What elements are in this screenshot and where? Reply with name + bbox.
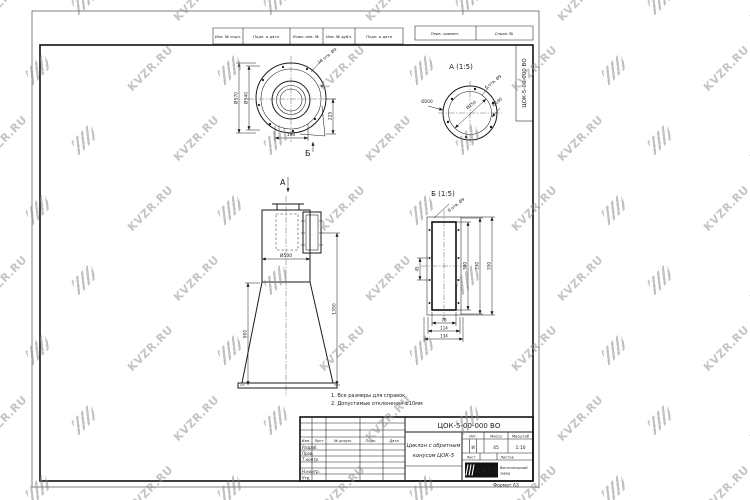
margin-cell-label: Подп. и дата xyxy=(253,34,280,39)
margin-cell-label: Подп. и дата xyxy=(366,34,393,39)
vertical-designation-text: ЦОК-5-00-000 ВО xyxy=(522,58,528,108)
dim-78: 78 xyxy=(441,318,447,323)
col-podp: Подп. xyxy=(366,439,377,443)
row-prov: Пров. xyxy=(302,451,314,456)
mass-header: Масса xyxy=(490,435,501,439)
note-line-2: 2. Допустимые отклонения ±10мм xyxy=(331,401,423,407)
part-title-line1: Циклон с обратным xyxy=(407,443,461,449)
first-application-cell: Перв. примен. xyxy=(431,31,460,36)
col-list: Лист xyxy=(313,439,324,443)
company-line2: завод xyxy=(500,472,511,476)
margin-cell-label: Взам. инв. № xyxy=(293,34,319,39)
dim-45: 45 xyxy=(415,266,420,272)
stamp-designation: ЦОК-5-00-000 ВО xyxy=(438,422,501,430)
margin-cells: Инв. № подл. Подп. и дата Взам. инв. № И… xyxy=(213,28,403,44)
scale-header: Масштаб xyxy=(512,435,530,439)
kvzr-logo-text: KVZR xyxy=(475,467,498,476)
margin-cell-label: Инв. № подл. xyxy=(215,34,241,39)
detail-a-view: А (1:5) Ø150 Ø200 Ø180 6 отв. Ø9 xyxy=(421,63,503,145)
holes-callout-18: 18 отв. Ø9 xyxy=(317,47,338,65)
drawing-page: Инв. № подл. Подп. и дата Взам. инв. № И… xyxy=(0,0,750,500)
dim-900: 900 xyxy=(243,330,249,339)
reference-number-cell: Справ. № xyxy=(495,31,514,36)
top-view: Ø570 Ø540 225 190 18 отв. Ø9 Б xyxy=(233,47,338,158)
dim-114: 114 xyxy=(440,326,448,331)
col-izm: Изм. xyxy=(302,439,310,443)
scale-value: 1:10 xyxy=(515,445,525,451)
detail-a-title: А (1:5) xyxy=(449,63,473,71)
dim-300: 300 xyxy=(463,262,468,270)
sheets-header: Листов xyxy=(499,456,513,460)
top-right-cells: Перв. примен. Справ. № xyxy=(415,26,533,40)
lit-header: Лит. xyxy=(468,435,477,439)
row-tkontr: Т.контр. xyxy=(302,457,319,462)
kvzr-logo: KVZR xyxy=(465,463,498,478)
view-ref-b: Б xyxy=(305,149,311,158)
drawing-sheet-svg: Инв. № подл. Подп. и дата Взам. инв. № И… xyxy=(0,0,750,500)
dim-dia-200: Ø200 xyxy=(421,99,433,104)
row-utv: Утв. xyxy=(302,476,310,481)
dim-dia-outer: Ø570 xyxy=(233,92,240,104)
holes-callout-6: 6 отв. Ø9 xyxy=(484,73,503,90)
note-line-1: 1. Все размеры для справок. xyxy=(331,393,407,399)
view-ref-a: А xyxy=(280,178,286,187)
format-note: Формат А3 xyxy=(493,483,519,489)
dim-225: 225 xyxy=(328,112,334,121)
row-razrab: Разраб. xyxy=(302,445,318,450)
notes: 1. Все размеры для справок. 2. Допустимы… xyxy=(331,393,423,407)
col-dokum: № докум. xyxy=(333,439,352,443)
dim-190: 190 xyxy=(287,132,296,138)
sheet-header: Лист xyxy=(465,456,476,460)
sheet-frame xyxy=(32,11,539,487)
dim-330: 330 xyxy=(475,262,480,270)
detail-b-title: Б (1:5) xyxy=(431,190,455,198)
lit-value: И xyxy=(471,445,474,451)
title-block: ЦОК-5-00-000 ВО Изм. Лист № докум. Подп.… xyxy=(300,417,533,481)
mass-value: 45 xyxy=(493,445,499,451)
dim-350: 350 xyxy=(487,262,492,270)
dim-134: 134 xyxy=(440,334,448,339)
margin-cell-label: Инв. № дубл. xyxy=(326,34,352,39)
vertical-designation-box: ЦОК-5-00-000 ВО xyxy=(516,45,533,121)
col-data: Дата xyxy=(388,439,398,443)
dim-dia-bolt: Ø540 xyxy=(243,92,250,104)
dim-dia-500: Ø500 xyxy=(280,252,292,259)
company-line1: Вентиляторный xyxy=(500,466,528,470)
row-nkontr: Н.контр. xyxy=(302,469,320,474)
part-title-line2: конусом ЦОК-5 xyxy=(413,453,455,459)
dim-1350: 1350 xyxy=(332,303,338,315)
front-view: А Ø500 900 1350 xyxy=(238,177,340,396)
detail-b-view: Б (1:5) 8 отв. Ø9 300 330 350 78 114 134… xyxy=(415,190,496,342)
holes-callout-8: 8 отв. Ø9 xyxy=(447,196,466,213)
